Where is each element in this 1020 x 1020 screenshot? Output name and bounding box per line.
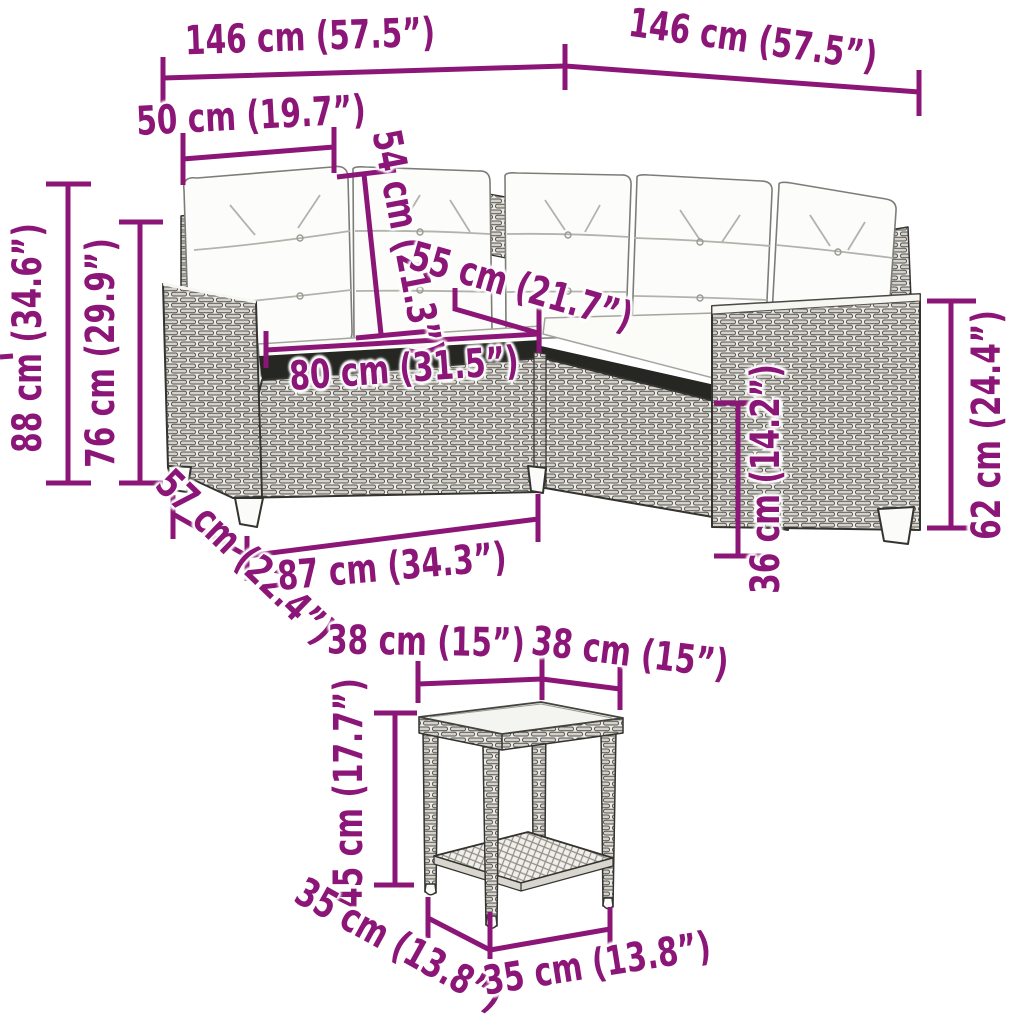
table-leg-front	[483, 747, 499, 926]
dim-label-back-height: 76 cm (29.9”)	[81, 238, 121, 468]
sofa-leg	[528, 466, 546, 493]
dim-line-back-height	[119, 222, 163, 483]
dim-label-total-height: 88 cm (34.6”)	[8, 223, 48, 453]
sofa-drawing	[163, 166, 920, 544]
dim-line-table-height	[374, 713, 417, 885]
table-leg-left	[423, 730, 438, 893]
dim-label-cushion-width: 50 cm (19.7”)	[135, 90, 367, 142]
dim-label-table-width-left: 38 cm (15”)	[327, 620, 526, 663]
table-shelf	[434, 832, 613, 883]
sofa-leg	[878, 507, 914, 544]
dim-label-arm-height: 62 cm (24.4”)	[967, 310, 1007, 540]
dim-label-table-height: 45 cm (17.7”)	[329, 678, 369, 908]
dimension-diagram: 146 cm (57.5”) 146 cm (57.5”) 50 cm (19.…	[0, 0, 1020, 1020]
dim-label-width-left: 146 cm (57.5”)	[184, 13, 436, 62]
table-leg-right	[601, 731, 616, 907]
side-table-drawing	[419, 702, 623, 928]
table-foot	[425, 884, 436, 895]
dim-label-seat-height: 36 cm (14.2”)	[746, 364, 786, 594]
furniture-illustration	[0, 0, 1020, 1020]
